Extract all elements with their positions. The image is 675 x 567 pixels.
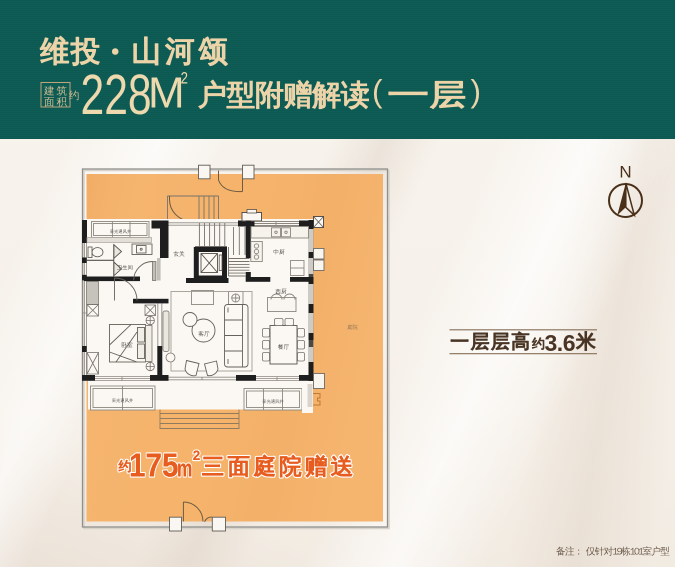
svg-text:3.6: 3.6 bbox=[545, 330, 576, 356]
svg-text:M: M bbox=[148, 68, 185, 117]
svg-text:(: ( bbox=[372, 73, 383, 109]
svg-text:): ) bbox=[471, 73, 482, 109]
svg-text:2: 2 bbox=[181, 69, 188, 88]
svg-text:N: N bbox=[619, 163, 631, 182]
svg-text:2: 2 bbox=[193, 448, 201, 463]
svg-text:175: 175 bbox=[129, 447, 179, 484]
svg-text:m: m bbox=[177, 456, 192, 482]
svg-text:228: 228 bbox=[81, 63, 152, 126]
